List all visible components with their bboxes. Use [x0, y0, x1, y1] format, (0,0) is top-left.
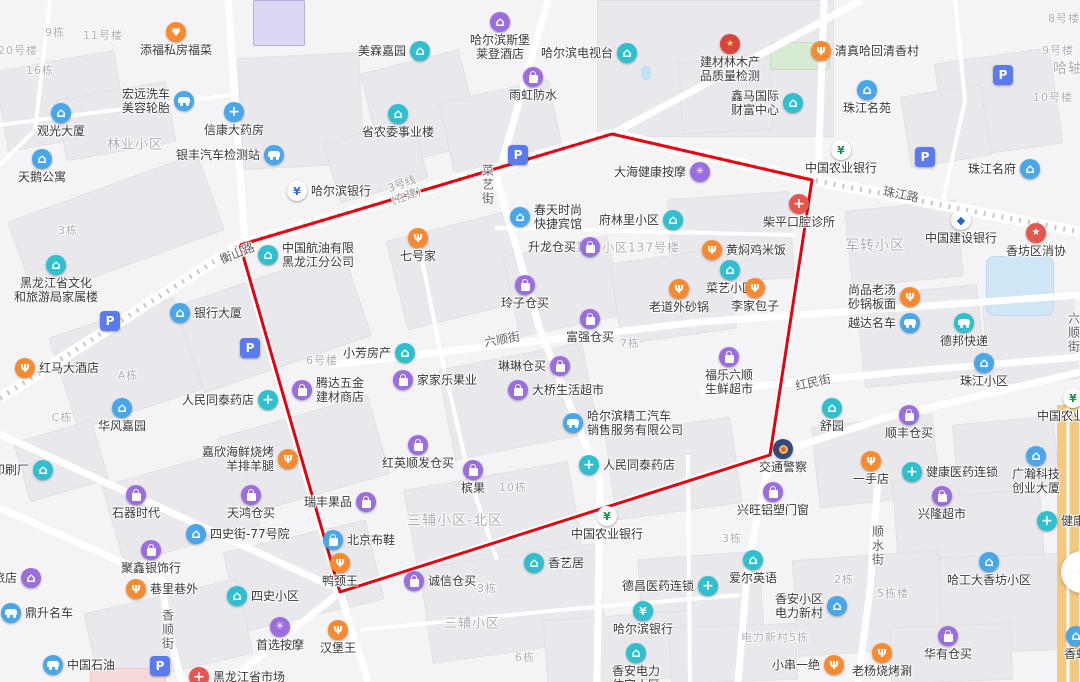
- poi-label-line: 石器时代: [112, 506, 160, 520]
- poi-label: 健康医药连锁: [1061, 514, 1080, 528]
- poi[interactable]: ⌂黑龙江省文化和旅游局家属楼: [46, 255, 66, 275]
- house-icon: ⌂: [857, 80, 877, 100]
- poi-label: 清真哈回清香村: [835, 44, 919, 58]
- poi-label-line: 中国农业银行: [1037, 409, 1080, 423]
- poi-label-line: 哈尔滨银行: [311, 184, 371, 198]
- poi-label-line: 华风嘉园: [98, 419, 146, 433]
- poi-label-line: 中国农业银行: [571, 527, 643, 541]
- poi-label-line: 珠江名苑: [843, 101, 891, 115]
- poi[interactable]: ⌂印刷厂: [33, 460, 53, 480]
- poi-label-line: 天鸿仓买: [227, 506, 275, 520]
- poi-label: 华风嘉园: [98, 419, 146, 433]
- food-icon: Ψ: [900, 287, 920, 307]
- bag-glyph: [414, 443, 423, 451]
- poi-label: 琳琳仓买: [498, 359, 546, 373]
- house-icon: ⌂: [1066, 626, 1080, 646]
- poi-label-line: 广瀚科技: [1012, 467, 1060, 481]
- poi[interactable]: 华有仓买: [938, 626, 958, 646]
- poi[interactable]: ⌂珠江名苑: [857, 80, 877, 100]
- poi[interactable]: 诚信仓买: [404, 571, 424, 591]
- poi-label-line: 四史小区: [251, 589, 299, 603]
- poi-label: 添福私房福菜: [140, 43, 212, 57]
- poi-label-line: 美容轮胎: [122, 101, 170, 115]
- poi[interactable]: 宏远洗车美容轮胎: [174, 91, 194, 111]
- poi[interactable]: ★建材林木产品质量检测: [720, 34, 740, 54]
- poi[interactable]: 石器时代: [126, 485, 146, 505]
- poi[interactable]: 银丰汽车检测站: [264, 145, 284, 165]
- poi[interactable]: ✳大海健康按摩: [690, 162, 710, 182]
- poi[interactable]: ⌂香艺居: [524, 553, 544, 573]
- house-icon: ⌂: [32, 149, 52, 169]
- poi[interactable]: 瑞丰果品: [356, 492, 376, 512]
- poi[interactable]: ⌂银行大厦: [170, 303, 190, 323]
- car-icon: [954, 313, 974, 333]
- poi-label: 交通警察: [759, 460, 807, 474]
- poi[interactable]: 哈尔滨精工汽车销售服务有限公司: [563, 413, 583, 433]
- poi-label-line: 大海健康按摩: [614, 165, 686, 179]
- bag-icon: [515, 275, 535, 295]
- poi-label: 天鹅公寓: [18, 170, 66, 184]
- poi[interactable]: ⌂香安电力住宅小区: [626, 643, 646, 663]
- poi[interactable]: ⌂美霖嘉园: [410, 41, 430, 61]
- poi-label-line: 诚信仓买: [428, 574, 476, 588]
- poi[interactable]: Ψ嘉欣海鲜烧烤羊排羊腿: [278, 449, 298, 469]
- bag-glyph: [586, 317, 595, 325]
- car-glyph: [567, 419, 579, 425]
- poi-label-line: 健康医药连锁: [926, 465, 998, 479]
- food-icon: Ψ: [745, 278, 765, 298]
- poi[interactable]: 兴隆超市: [932, 486, 952, 506]
- poi-label-line: 中国石油: [67, 658, 115, 672]
- bank-ccb-icon: ◆: [951, 210, 971, 230]
- marker-tail: [556, 371, 564, 379]
- food-glyph: Ψ: [335, 558, 344, 569]
- poi-label: 一手店: [853, 472, 889, 486]
- poi[interactable]: ⌂府林里小区: [663, 210, 683, 230]
- poi-label-line: 尚品老汤: [848, 283, 896, 297]
- bag-glyph: [944, 634, 953, 642]
- poi-label: 哈工大香坊小区: [947, 573, 1031, 587]
- house-icon: ⌂: [51, 103, 71, 123]
- poi[interactable]: Ψ七号家: [408, 228, 428, 248]
- house-glyph: ⌂: [263, 249, 272, 262]
- poi-label: 华有仓买: [924, 647, 972, 661]
- poi-label: 兴旺铝塑门窗: [737, 503, 809, 517]
- poi-label: 腾达五金建材商店: [316, 376, 364, 404]
- map-canvas[interactable]: 林业小区军转小区菜艺小区137号楼三辅小区-北区三辅小区20号楼9栋11号楼16…: [0, 0, 1080, 682]
- house-glyph: ⌂: [1031, 450, 1040, 463]
- poi-label-line: 哈尔滨银行: [613, 622, 673, 636]
- food-glyph: Ψ: [707, 245, 716, 256]
- house-glyph: ⌂: [668, 214, 677, 227]
- bag-glyph: [586, 245, 595, 253]
- food-glyph: Ψ: [905, 292, 914, 303]
- house-icon: ⌂: [1020, 159, 1040, 179]
- police-icon: [773, 439, 793, 459]
- pill-icon: +: [224, 102, 244, 122]
- poi-label-line: 中国建设银行: [925, 231, 997, 245]
- poi-label-line: 北京布鞋: [347, 533, 395, 547]
- house-icon: ⌂: [46, 255, 66, 275]
- pill-glyph: +: [1041, 514, 1053, 528]
- poi-label-line: 香虹: [1064, 647, 1080, 661]
- marker-tail: [329, 545, 337, 553]
- poi[interactable]: ⌂珠江名府: [1020, 159, 1040, 179]
- poi[interactable]: ⌂爱尔英语: [743, 550, 763, 570]
- poi[interactable]: ✳首选按摩: [270, 617, 290, 637]
- poi[interactable]: P: [915, 147, 935, 167]
- poi-label-line: 四史街-77号院: [210, 527, 290, 541]
- poi[interactable]: +人民同泰药店: [579, 455, 599, 475]
- food-icon: Ψ: [702, 240, 722, 260]
- poi-label: 红英顺发仓买: [382, 456, 454, 470]
- poi-label-line: 哈尔滨电视台: [541, 46, 613, 60]
- poi[interactable]: 中国石油: [43, 655, 63, 675]
- poi[interactable]: 聚鑫银饰行: [141, 540, 161, 560]
- poi-label: 印刷厂: [0, 463, 29, 477]
- house-glyph: ⌂: [415, 45, 424, 58]
- food-glyph: Ψ: [829, 660, 838, 671]
- poi[interactable]: Ψ一手店: [861, 451, 881, 471]
- house-icon: ⌂: [227, 586, 247, 606]
- parking-icon: P: [100, 311, 120, 331]
- bag-icon: [404, 571, 424, 591]
- poi[interactable]: 红英顺发仓买: [408, 435, 428, 455]
- poi[interactable]: 大桥生活超市: [508, 380, 528, 400]
- poi[interactable]: ⌂哈尔滨斯堡莱登酒店: [490, 12, 510, 32]
- house-glyph: ⌂: [1071, 630, 1080, 643]
- poi[interactable]: +德昌医药连锁: [698, 576, 718, 596]
- poi[interactable]: Ψ鸭颈王: [330, 553, 350, 573]
- poi[interactable]: 雨虹防水: [523, 67, 543, 87]
- house-icon: ⌂: [743, 550, 763, 570]
- poi-label: 哈尔滨精工汽车销售服务有限公司: [587, 409, 683, 437]
- poi-label: 舒园: [820, 419, 844, 433]
- poi[interactable]: Ψ红马大酒店: [15, 358, 35, 378]
- poi-label-line: 中国航油有限: [282, 241, 354, 255]
- poi-label-line: 大桥生活超市: [532, 383, 604, 397]
- poi[interactable]: ¥哈尔滨银行: [287, 181, 307, 201]
- marker-tail: [293, 196, 301, 204]
- bag-glyph: [938, 494, 947, 502]
- pill-glyph: +: [228, 105, 240, 119]
- poi[interactable]: ¥中国农业银行: [831, 140, 851, 160]
- poi[interactable]: Ψ汉堡王: [328, 620, 348, 640]
- house-glyph: ⌂: [529, 557, 538, 570]
- house-glyph: ⌂: [748, 554, 757, 567]
- poi[interactable]: 交通警察: [773, 439, 793, 459]
- poi-label-line: 清真哈回清香村: [835, 44, 919, 58]
- poi-label-line: 小芳房产: [343, 346, 391, 360]
- cross-icon: +: [789, 194, 809, 214]
- food-icon: Ψ: [330, 553, 350, 573]
- poi[interactable]: ⌂舒园: [822, 398, 842, 418]
- house-glyph: ⌂: [175, 307, 184, 320]
- poi[interactable]: Ψ小串一绝: [824, 655, 844, 675]
- poi-label: 哈尔滨银行: [613, 622, 673, 636]
- poi-label-line: 住宅小区: [612, 678, 660, 682]
- poi[interactable]: +黑龙江省市场: [189, 667, 209, 682]
- poi-label-line: 交通警察: [759, 460, 807, 474]
- bag-glyph: [329, 538, 338, 546]
- poi-label-line: 销售服务有限公司: [587, 423, 683, 437]
- poi-label-line: 快捷宾馆: [534, 217, 582, 231]
- food-glyph: Ψ: [674, 284, 683, 295]
- spa-glyph: ✳: [276, 622, 284, 632]
- poi[interactable]: 兴旺铝塑门窗: [763, 482, 783, 502]
- poi[interactable]: 北京布鞋: [323, 530, 343, 550]
- poi-label: 中国农业银行: [1037, 409, 1080, 423]
- poi[interactable]: ⌂四史街-77号院: [186, 524, 206, 544]
- bag-icon: [932, 486, 952, 506]
- poi-label: 诚信仓买: [428, 574, 476, 588]
- poi[interactable]: ⌂春天时尚快捷宾馆: [510, 207, 530, 227]
- poi[interactable]: ◆中国建设银行: [951, 210, 971, 230]
- bag-icon: [463, 460, 483, 480]
- poi-label: 广瀚科技创业大厦: [1012, 467, 1060, 495]
- car-icon: [264, 145, 284, 165]
- car-icon: [1, 603, 21, 623]
- poi-label: 玲子仓买: [501, 296, 549, 310]
- poi-label-line: 春天时尚: [534, 203, 582, 217]
- poi[interactable]: +健康医药连锁: [902, 462, 922, 482]
- poi-label-line: 哈尔滨精工汽车: [587, 409, 683, 423]
- poi[interactable]: ¥中国农业银行: [597, 506, 617, 526]
- poi-label-line: 人民同泰药店: [182, 393, 254, 407]
- poi-label-line: 添福私房福菜: [140, 43, 212, 57]
- poi[interactable]: ⌂中国航油有限黑龙江分公司: [258, 245, 278, 265]
- poi-label-line: 雨虹防水: [509, 88, 557, 102]
- poi[interactable]: Ψ老道外砂锅: [669, 279, 689, 299]
- bag-icon: [141, 540, 161, 560]
- poi-label-line: 升龙仓买: [528, 240, 576, 254]
- house-glyph: ⌂: [117, 402, 126, 415]
- marker-tail: [514, 395, 522, 403]
- poi-label-line: 鸭颈王: [322, 574, 358, 588]
- poi-label: 黑龙江省市场: [213, 670, 285, 682]
- marker-tail: [362, 507, 370, 515]
- house-icon: ⌂: [663, 210, 683, 230]
- poi-label: 香虹: [1064, 647, 1080, 661]
- food-icon: Ψ: [278, 449, 298, 469]
- poi[interactable]: ⌂四史小区: [227, 586, 247, 606]
- poi-label: 珠江名苑: [843, 101, 891, 115]
- poi[interactable]: 玲子仓买: [515, 275, 535, 295]
- house-icon: ⌂: [388, 104, 408, 124]
- house-glyph: ⌂: [232, 590, 241, 603]
- poi-label: 香安电力住宅小区: [612, 664, 660, 682]
- house-glyph: ⌂: [622, 47, 631, 60]
- poi[interactable]: 越达名车: [900, 313, 920, 333]
- poi-label-line: 美霖嘉园: [358, 44, 406, 58]
- pill-icon: +: [902, 462, 922, 482]
- bag-icon: [508, 380, 528, 400]
- poi[interactable]: P: [508, 145, 528, 165]
- house-glyph: ⌂: [984, 556, 993, 569]
- poi-label: 柴平口腔诊所: [763, 215, 835, 229]
- poi[interactable]: ¥中国农业银行: [1063, 388, 1080, 408]
- poi[interactable]: ⌂鑫马国际财富中心: [783, 93, 803, 113]
- bank-abc-icon: ¥: [831, 140, 851, 160]
- poi-label: 鼎升名车: [25, 606, 73, 620]
- poi[interactable]: P: [993, 65, 1013, 85]
- poi-label: 尚品老汤砂锅板面: [848, 283, 896, 311]
- poi[interactable]: 福乐六顺生鲜超市: [719, 347, 739, 367]
- food-glyph: Ψ: [413, 233, 422, 244]
- poi-label-line: 香安小区: [775, 592, 823, 606]
- spa-icon: ✳: [690, 162, 710, 182]
- food-icon: Ψ: [861, 451, 881, 471]
- poi[interactable]: ⌂香安小区电力新村: [827, 596, 847, 616]
- poi[interactable]: Ψ黄焖鸡米饭: [702, 240, 722, 260]
- poi[interactable]: 腾达五金建材商店: [292, 380, 312, 400]
- house-glyph: ⌂: [631, 647, 640, 660]
- poi[interactable]: +健康医药连锁: [1037, 511, 1057, 531]
- poi-label: 爱尔英语: [729, 571, 777, 585]
- poi[interactable]: ⌂哈工大香坊小区: [979, 552, 999, 572]
- poi[interactable]: 升龙仓买: [580, 237, 600, 257]
- poi[interactable]: P: [100, 311, 120, 331]
- bag-glyph: [362, 500, 371, 508]
- poi-label: 天鸿仓买: [227, 506, 275, 520]
- car-icon: [900, 313, 920, 333]
- poi[interactable]: +人民同泰药店: [258, 390, 278, 410]
- bag-icon: [580, 237, 600, 257]
- poi-label-line: 观光大厦: [37, 124, 85, 138]
- poi-label-line: 聚鑫银饰行: [121, 561, 181, 575]
- poi-label-line: 莱登酒店: [470, 47, 530, 61]
- house-glyph: ⌂: [191, 528, 200, 541]
- poi-label: 大桥生活超市: [532, 383, 604, 397]
- poi[interactable]: ⌂哈尔滨电视台: [617, 43, 637, 63]
- marker-tail: [906, 328, 914, 336]
- poi[interactable]: ⌂省农委事业楼: [388, 104, 408, 124]
- poi[interactable]: Ψ老杨烧烤涮: [872, 643, 892, 663]
- poi[interactable]: 富强仓买: [580, 309, 600, 329]
- poi-label-line: 鼎升名车: [25, 606, 73, 620]
- poi-label-line: 华有仓买: [924, 647, 972, 661]
- poi[interactable]: ¥哈尔滨银行: [633, 601, 653, 621]
- house-glyph: ⌂: [38, 464, 47, 477]
- poi[interactable]: ♥添福私房福菜: [166, 22, 186, 42]
- marker-tail: [399, 385, 407, 393]
- poi[interactable]: ⌂香虹: [1066, 626, 1080, 646]
- poi[interactable]: P: [240, 338, 260, 358]
- poi[interactable]: ⌂小芳房产: [395, 343, 415, 363]
- bag-icon: [550, 356, 570, 376]
- marker-tail: [696, 177, 704, 185]
- poi[interactable]: ⌂菜艺小区: [720, 260, 740, 280]
- poi-label-line: 红马大酒店: [39, 361, 99, 375]
- bag-icon: [241, 485, 261, 505]
- poi[interactable]: 德邦快递: [954, 313, 974, 333]
- pill-glyph: +: [583, 458, 595, 472]
- poi[interactable]: 鼎升名车: [1, 603, 21, 623]
- poi[interactable]: P: [150, 656, 170, 676]
- poi-label: 石器时代: [112, 506, 160, 520]
- poi[interactable]: +柴平口腔诊所: [789, 194, 809, 214]
- poi-label: 红马大酒店: [39, 361, 99, 375]
- poi-label: 美霖嘉园: [358, 44, 406, 58]
- bag-glyph: [399, 378, 408, 386]
- poi-label: 四史小区: [251, 589, 299, 603]
- poi-label: 珠江小区: [960, 374, 1008, 388]
- car-icon: [563, 413, 583, 433]
- house-glyph: ⌂: [51, 259, 60, 272]
- poi[interactable]: ⌂观光大厦: [51, 103, 71, 123]
- poi[interactable]: Ψ尚品老汤砂锅板面: [900, 287, 920, 307]
- pill-icon: +: [1037, 511, 1057, 531]
- poi-label-line: 舒园: [820, 419, 844, 433]
- cross-icon: +: [189, 667, 209, 682]
- poi-label-line: 宏远洗车: [122, 87, 170, 101]
- poi-label: 老杨烧烤涮: [852, 664, 912, 678]
- poi-label: 七号家: [400, 249, 436, 263]
- food-glyph: Ψ: [283, 454, 292, 465]
- poi[interactable]: ★香坊区消协: [1026, 223, 1046, 243]
- poi-label: 小串一绝: [772, 658, 820, 672]
- poi[interactable]: +信康大药房: [224, 102, 244, 122]
- food-icon: Ψ: [872, 643, 892, 663]
- poi-label-line: 健康医药连锁: [1061, 514, 1080, 528]
- poi-label-line: 羊排羊腿: [202, 459, 274, 473]
- poi-label: 中国石油: [67, 658, 115, 672]
- bag-icon: [323, 530, 343, 550]
- car-icon: [43, 655, 63, 675]
- police-badge-dot: [779, 445, 788, 454]
- poi[interactable]: ⌂天鹅公寓: [32, 149, 52, 169]
- house-icon: ⌂: [974, 353, 994, 373]
- poi[interactable]: ⌂华风嘉园: [112, 398, 132, 418]
- bag-icon: [292, 380, 312, 400]
- poi[interactable]: Ψ清真哈回清香村: [811, 41, 831, 61]
- poi-label-line: 建材林木产: [700, 55, 760, 69]
- house-glyph: ⌂: [979, 357, 988, 370]
- poi-label-line: 银丰汽车检测站: [176, 148, 260, 162]
- poi[interactable]: ⌂旅店: [21, 568, 41, 588]
- poi[interactable]: 顺丰仓买: [899, 405, 919, 425]
- poi[interactable]: ⌂广瀚科技创业大厦: [1026, 446, 1046, 466]
- bag-icon: [393, 370, 413, 390]
- parking-icon: P: [508, 145, 528, 165]
- poi[interactable]: Ψ李家包子: [745, 278, 765, 298]
- bag-glyph: [514, 388, 523, 396]
- poi[interactable]: Ψ巷里巷外: [126, 579, 146, 599]
- poi-label-line: 哈工大香坊小区: [947, 573, 1031, 587]
- poi-label: 旅店: [0, 571, 17, 585]
- poi-label-line: 人民同泰药店: [603, 458, 675, 472]
- car-glyph: [5, 609, 17, 615]
- poi-label-line: 府林里小区: [599, 213, 659, 227]
- poi[interactable]: 天鸿仓买: [241, 485, 261, 505]
- house-icon: ⌂: [827, 596, 847, 616]
- poi-label-line: 福乐六顺: [705, 368, 753, 382]
- house-icon: ⌂: [1026, 446, 1046, 466]
- house-icon: ⌂: [395, 343, 415, 363]
- poi[interactable]: 家家乐果业: [393, 370, 413, 390]
- poi[interactable]: 琳琳仓买: [550, 356, 570, 376]
- poi-label-line: 珠江名府: [968, 162, 1016, 176]
- poi[interactable]: ⌂珠江小区: [974, 353, 994, 373]
- poi[interactable]: 槟果: [463, 460, 483, 480]
- poi-label: 中国建设银行: [925, 231, 997, 245]
- poi-label-line: 老道外砂锅: [649, 300, 709, 314]
- bag-glyph: [769, 490, 778, 498]
- bag-glyph: [521, 283, 530, 291]
- bag-glyph: [725, 355, 734, 363]
- poi-label: 聚鑫银饰行: [121, 561, 181, 575]
- poi-label-line: 富强仓买: [566, 330, 614, 344]
